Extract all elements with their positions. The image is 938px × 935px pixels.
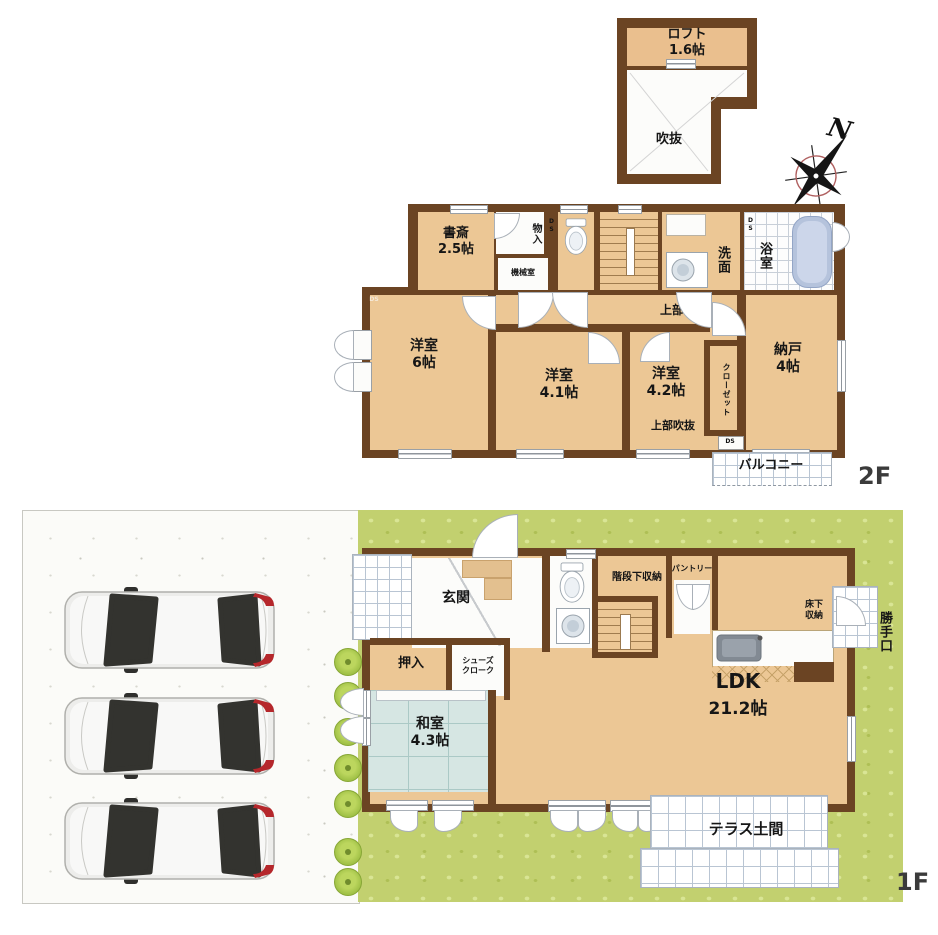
- car-icon: [62, 586, 280, 674]
- loft-size: 1.6帖: [669, 43, 705, 58]
- window: [566, 549, 596, 559]
- study-name: 書斎: [443, 226, 469, 241]
- upper-void-label: 上部吹抜: [636, 419, 710, 432]
- entrance-label: 玄関: [424, 590, 488, 607]
- underfloor-line2: 収納: [805, 611, 823, 621]
- bush-icon: [334, 868, 362, 896]
- window: [618, 205, 642, 214]
- west42-size: 4.2帖: [647, 383, 686, 399]
- bathtub-icon: [792, 216, 832, 288]
- closet-door: [352, 362, 372, 392]
- window: [516, 449, 564, 459]
- west42-name: 洋室: [652, 366, 680, 382]
- entrance-porch: [352, 554, 412, 640]
- window: [837, 340, 846, 392]
- car-icon: [62, 692, 280, 780]
- oshiire-label: 押入: [378, 656, 444, 672]
- wash-label: 洗面: [712, 238, 730, 282]
- shoe-cabinet: [484, 578, 512, 600]
- shoe-cabinet: [462, 560, 512, 578]
- backdoor-label: 勝手口: [874, 604, 892, 660]
- ldk-size: 21.2帖: [709, 699, 768, 719]
- car-icon: [62, 797, 280, 885]
- bush-icon: [334, 754, 362, 782]
- door-arc: [334, 330, 354, 360]
- compass-north-label: N: [824, 112, 856, 147]
- door-arc: [334, 362, 354, 392]
- ds-label: DS: [745, 215, 753, 235]
- closet-door: [352, 330, 372, 360]
- washer-icon: [666, 252, 708, 288]
- underfloor-label: 床下 収納: [790, 600, 838, 622]
- floor2-tag: 2F: [858, 462, 891, 490]
- underfloor-line1: 床下: [805, 600, 823, 610]
- shoes-cloak-line1: シューズ: [462, 656, 494, 665]
- kitchen-sink-icon: [716, 634, 764, 662]
- wall: [370, 638, 510, 645]
- floor1-tag: 1F: [896, 868, 929, 896]
- balcony-label: バルコニー: [712, 458, 830, 474]
- ldk-label: LDK 21.2帖: [656, 668, 820, 720]
- ds-label: DS: [546, 216, 554, 236]
- ldk-name: LDK: [716, 669, 761, 693]
- floor-plan-canvas: ロフト 1.6帖 吹抜 N 書斎 2.5帖 物入 DS 機械室: [0, 0, 938, 935]
- washitsu-label: 和室 4.3帖: [388, 716, 472, 750]
- door-arc: [832, 222, 850, 252]
- study-label: 書斎 2.5帖: [416, 226, 496, 257]
- nando-size: 4帖: [776, 359, 800, 375]
- storage-small-label: 物入: [523, 215, 541, 253]
- west41-label: 洋室 4.1帖: [514, 368, 604, 402]
- void-label: 吹抜: [627, 132, 711, 148]
- west6-label: 洋室 6帖: [384, 338, 464, 372]
- loft-name: ロフト: [667, 27, 706, 42]
- west42-label: 洋室 4.2帖: [626, 366, 706, 400]
- ds-label: DS: [718, 439, 742, 445]
- nando-name: 納戸: [774, 342, 802, 358]
- stairs-rail: [626, 228, 635, 276]
- sliding-door-band: [376, 690, 486, 701]
- void-diagonals: [627, 70, 747, 174]
- west6-name: 洋室: [410, 338, 438, 354]
- shoes-cloak-line2: クローク: [462, 666, 494, 675]
- west6-size: 6帖: [412, 355, 436, 371]
- terrace-label: テラス土間: [676, 820, 816, 838]
- west41-size: 4.1帖: [540, 385, 579, 401]
- terrace: [640, 848, 839, 888]
- window: [398, 449, 452, 459]
- loft-hatch-opening: [666, 59, 696, 69]
- washitsu-name: 和室: [416, 716, 444, 732]
- window: [847, 716, 856, 762]
- west41-name: 洋室: [545, 368, 573, 384]
- bush-icon: [334, 790, 362, 818]
- ds-label: DS: [366, 297, 382, 303]
- machine-label: 機械室: [498, 268, 548, 278]
- wall: [542, 556, 550, 652]
- pantry-label: パントリー: [664, 564, 720, 574]
- study-size: 2.5帖: [438, 242, 474, 257]
- bath-label: 浴室: [754, 234, 772, 278]
- toilet-icon: [556, 562, 588, 604]
- bush-icon: [334, 648, 362, 676]
- shoes-cloak-label: シューズ クローク: [450, 656, 506, 675]
- washitsu-size: 4.3帖: [411, 733, 450, 749]
- toilet-icon: [562, 216, 590, 258]
- loft-label: ロフト 1.6帖: [627, 27, 747, 58]
- window: [636, 449, 690, 459]
- window: [560, 205, 588, 214]
- wall: [488, 690, 496, 804]
- washer-icon: [556, 608, 590, 644]
- understair-label: 階段下収納: [598, 572, 676, 584]
- stairs-rail: [620, 614, 631, 650]
- window: [450, 205, 488, 214]
- nando-label: 納戸 4帖: [752, 342, 824, 376]
- wash-cabinet: [666, 214, 706, 236]
- closet-label: クローゼット: [715, 350, 731, 430]
- bush-icon: [334, 838, 362, 866]
- wall: [496, 324, 628, 332]
